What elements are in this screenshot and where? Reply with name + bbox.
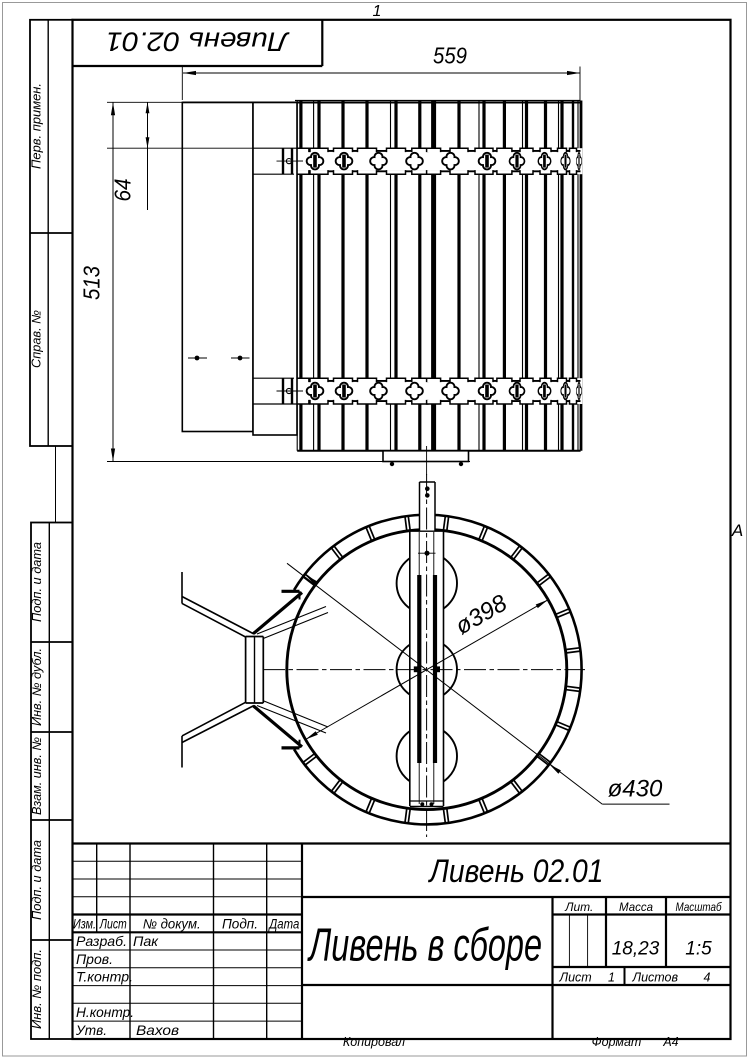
svg-text:513: 513 bbox=[79, 266, 105, 300]
svg-text:Дата: Дата bbox=[268, 916, 300, 931]
svg-text:А: А bbox=[731, 521, 743, 540]
svg-text:Разраб.: Разраб. bbox=[76, 933, 127, 949]
svg-text:Подп. и дата: Подп. и дата bbox=[30, 840, 44, 920]
svg-text:Инв. № подп.: Инв. № подп. bbox=[30, 949, 44, 1029]
svg-text:Утв.: Утв. bbox=[75, 1022, 107, 1038]
svg-text:Справ. №: Справ. № bbox=[30, 310, 44, 368]
svg-text:Изм.: Изм. bbox=[73, 916, 96, 931]
svg-text:1:5: 1:5 bbox=[685, 939, 712, 960]
svg-text:ø430: ø430 bbox=[608, 776, 663, 803]
svg-text:Масштаб: Масштаб bbox=[676, 900, 723, 914]
svg-text:Ливень 02.01: Ливень 02.01 bbox=[106, 27, 290, 57]
svg-text:Подп.: Подп. bbox=[222, 916, 258, 931]
svg-text:Лит.: Лит. bbox=[564, 900, 593, 914]
svg-text:Ливень 02.01: Ливень 02.01 bbox=[428, 853, 604, 889]
svg-text:Формат: Формат bbox=[592, 1035, 642, 1049]
svg-text:64: 64 bbox=[110, 179, 136, 202]
svg-text:Инв. № дубл.: Инв. № дубл. bbox=[30, 648, 44, 726]
svg-text:559: 559 bbox=[433, 43, 467, 69]
svg-text:Пров.: Пров. bbox=[76, 951, 113, 967]
svg-text:Т.контр.: Т.контр. bbox=[76, 969, 133, 985]
svg-text:Масса: Масса bbox=[619, 900, 653, 914]
svg-text:4: 4 bbox=[704, 971, 711, 985]
svg-text:Подп. и дата: Подп. и дата bbox=[30, 542, 44, 622]
svg-text:Перв. примен.: Перв. примен. bbox=[30, 83, 44, 169]
svg-text:Взам. инв. №: Взам. инв. № bbox=[30, 737, 44, 815]
svg-text:Листов: Листов bbox=[632, 971, 679, 985]
svg-text:№ докум.: № докум. bbox=[143, 916, 201, 931]
svg-text:Лист: Лист bbox=[559, 971, 592, 985]
svg-text:А4: А4 bbox=[662, 1035, 678, 1049]
svg-text:1: 1 bbox=[373, 3, 382, 20]
svg-text:Ливень в сборе: Ливень в сборе bbox=[307, 919, 542, 971]
svg-text:1: 1 bbox=[608, 971, 615, 985]
svg-text:Пак: Пак bbox=[133, 933, 159, 949]
svg-text:Н.контр.: Н.контр. bbox=[76, 1004, 134, 1020]
svg-text:Копировал: Копировал bbox=[343, 1035, 405, 1049]
svg-text:Вахов: Вахов bbox=[136, 1022, 179, 1038]
svg-text:Лист: Лист bbox=[99, 916, 127, 931]
svg-text:18,23: 18,23 bbox=[612, 939, 660, 960]
